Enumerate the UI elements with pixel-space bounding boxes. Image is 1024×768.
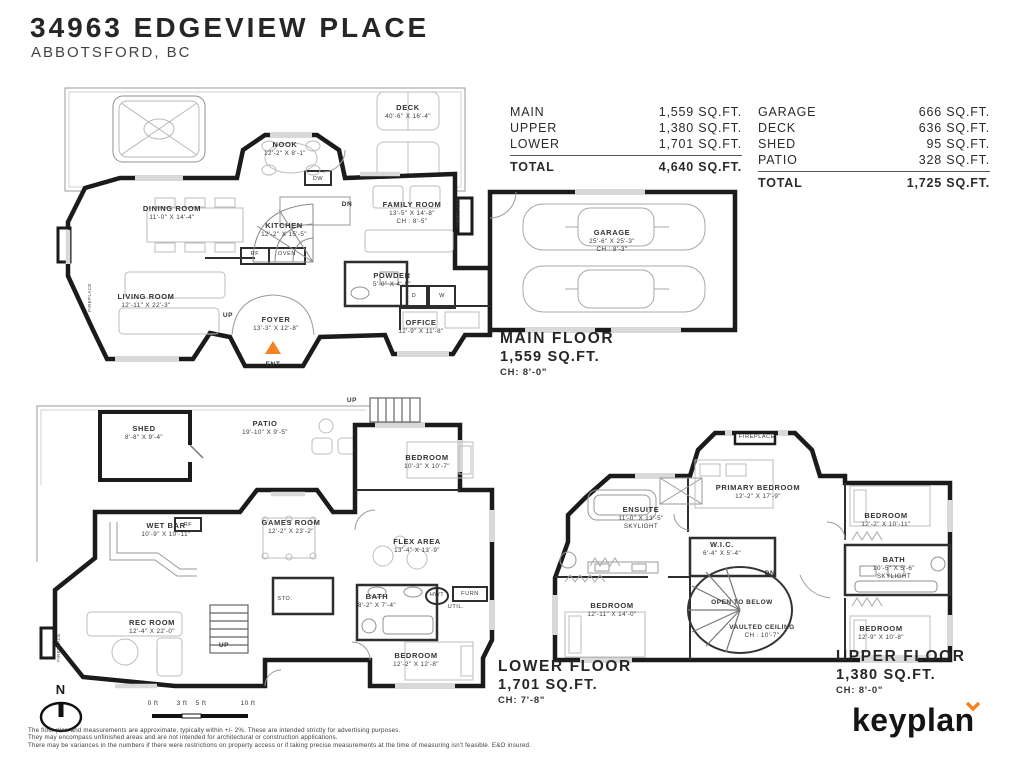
room-label-family: FAMILY ROOM13'-5" X 14'-8"CH : 8'-5" bbox=[383, 200, 442, 225]
room-label-powder: POWDER5'-0" X 4'-8" bbox=[373, 271, 411, 288]
main-floor-label: MAIN FLOOR 1,559 SQ.FT. CH: 8'-0" bbox=[500, 330, 614, 378]
room-label-kitchen: KITCHEN12'-2" X 15'-5" bbox=[261, 221, 307, 238]
furnace-label: FURN bbox=[461, 591, 479, 597]
table-row: SHED95 SQ.FT. bbox=[758, 136, 990, 152]
stairs-down-label: DN bbox=[765, 570, 776, 577]
chair-icon bbox=[312, 438, 332, 454]
room-label-foyer: FOYER13'-3" X 12'-8" bbox=[253, 315, 299, 332]
upper-floor-label: UPPER FLOOR 1,380 SQ.FT. CH: 8'-0" bbox=[836, 648, 966, 696]
fridge-label: RF bbox=[251, 251, 260, 257]
stairs-up-label: UP bbox=[223, 312, 233, 319]
page-title: 34963 EDGEVIEW PLACE bbox=[30, 12, 429, 44]
table-total-row: TOTAL1,725 SQ.FT. bbox=[758, 171, 990, 191]
patio-furniture bbox=[312, 419, 358, 454]
room-label-games: GAMES ROOM12'-2" X 23'-2" bbox=[262, 518, 321, 535]
room-label-nook: NOOK12'-2" X 8'-1" bbox=[264, 140, 306, 157]
table-row: DECK636 SQ.FT. bbox=[758, 120, 990, 136]
scale-tick-label: 5 ft bbox=[196, 700, 207, 707]
storage-label: STO. bbox=[277, 596, 292, 602]
north-label: N bbox=[38, 682, 84, 697]
fireplace-label: FIREPLACE bbox=[739, 434, 775, 440]
scale-bar: 0 ft 3 ft 5 ft 10 ft bbox=[148, 700, 266, 724]
fireplace-icon bbox=[41, 628, 54, 658]
disclaimer-text: The floor plan and measurements are appr… bbox=[28, 727, 688, 749]
fireplace-label: FIREPLACE bbox=[87, 283, 92, 312]
room-label-garage: GARAGE25'-6" X 25'-3"CH : 8'-3" bbox=[589, 228, 635, 253]
main-floor-plan-drawing bbox=[55, 80, 745, 380]
room-label-patio: PATIO19'-10" X 9'-5" bbox=[242, 419, 288, 436]
stairs-up-icon bbox=[370, 398, 420, 422]
logo-text: keyplan bbox=[852, 702, 975, 738]
room-label-bedroom: BEDROOM12'-11" X 14'-0" bbox=[587, 601, 636, 618]
stairs-up-label: UP bbox=[347, 397, 357, 404]
oven-label: OVEN bbox=[278, 251, 296, 257]
scale-bar-graphic bbox=[148, 711, 260, 721]
room-label-deck: DECK40'-6" X 16'-4" bbox=[385, 103, 431, 120]
utility-label: UTIL. bbox=[448, 604, 464, 610]
room-label-bath: BATH10'-5" X 5'-6"SKYLIGHT bbox=[873, 555, 915, 580]
stairs-up-label: UP bbox=[219, 642, 229, 649]
room-label-wic: W.I.C.6'-4" X 5'-4" bbox=[703, 540, 741, 557]
dishwasher-label: DW bbox=[313, 176, 323, 182]
room-label-office: OFFICE12'-9" X 11'-8" bbox=[398, 318, 443, 335]
room-label-dining: DINING ROOM11'-0" X 14'-4" bbox=[143, 204, 201, 221]
water-heater-label: HWT bbox=[430, 592, 444, 598]
page-subtitle: ABBOTSFORD, BC bbox=[31, 44, 192, 61]
keyplan-logo: keyplan bbox=[852, 702, 975, 739]
lower-floor-label: LOWER FLOOR 1,701 SQ.FT. CH: 7'-8" bbox=[498, 658, 632, 706]
fridge-label: RF bbox=[184, 522, 193, 528]
table-row: GARAGE666 SQ.FT. bbox=[758, 104, 990, 120]
scale-tick-label: 10 ft bbox=[241, 700, 256, 707]
stairs-down-label: DN bbox=[342, 201, 353, 208]
logo-accent-icon bbox=[965, 701, 981, 712]
floor-plan-page: { "header": {"title": "34963 EDGEVIEW PL… bbox=[0, 0, 1024, 768]
scale-tick-label: 0 ft bbox=[148, 700, 159, 707]
table-row: PATIO328 SQ.FT. bbox=[758, 152, 990, 168]
room-label-shed: SHED8'-8" X 9'-4" bbox=[125, 424, 163, 441]
fireplace-label: FIREPLACE bbox=[56, 633, 61, 662]
scale-tick-label: 3 ft bbox=[177, 700, 188, 707]
dryer-label: D bbox=[412, 293, 417, 299]
room-label-rec: REC ROOM12'-4" X 22'-0" bbox=[129, 618, 175, 635]
planter-icon bbox=[319, 419, 333, 433]
washer-label: W bbox=[439, 293, 445, 299]
room-label-bath: BATH8'-2" X 7'-4" bbox=[358, 592, 396, 609]
hot-tub-icon bbox=[113, 96, 205, 162]
fireplace-icon bbox=[458, 198, 472, 234]
room-label-primary: PRIMARY BEDROOM12'-2" X 17'-9" bbox=[716, 483, 800, 500]
room-label-vaulted-ceiling: VAULTED CEILINGCH : 10'-7" bbox=[729, 624, 794, 639]
shed-walls bbox=[100, 412, 203, 480]
room-label-bedroom: BEDROOM12'-2" X 10'-11" bbox=[861, 511, 910, 528]
room-label-bedroom: BEDROOM10'-3" X 10'-7" bbox=[404, 453, 450, 470]
area-table-exterior: GARAGE666 SQ.FT. DECK636 SQ.FT. SHED95 S… bbox=[758, 104, 990, 191]
room-label-living: LIVING ROOM12'-11" X 22'-3" bbox=[117, 292, 174, 309]
room-label-flex: FLEX AREA13'-4" X 13'-9" bbox=[393, 537, 441, 554]
fireplace-label: FIREPLACE bbox=[455, 198, 460, 227]
room-label-bedroom: BEDROOM12'-2" X 12'-8" bbox=[393, 651, 439, 668]
room-label-open-to-below: OPEN TO BELOW bbox=[711, 599, 773, 606]
room-label-bedroom: BEDROOM12'-9" X 10'-8" bbox=[858, 624, 904, 641]
room-label-ensuite: ENSUITE11'-0" X 13'-5"SKYLIGHT bbox=[618, 505, 663, 530]
entry-label: ENT bbox=[266, 361, 281, 368]
